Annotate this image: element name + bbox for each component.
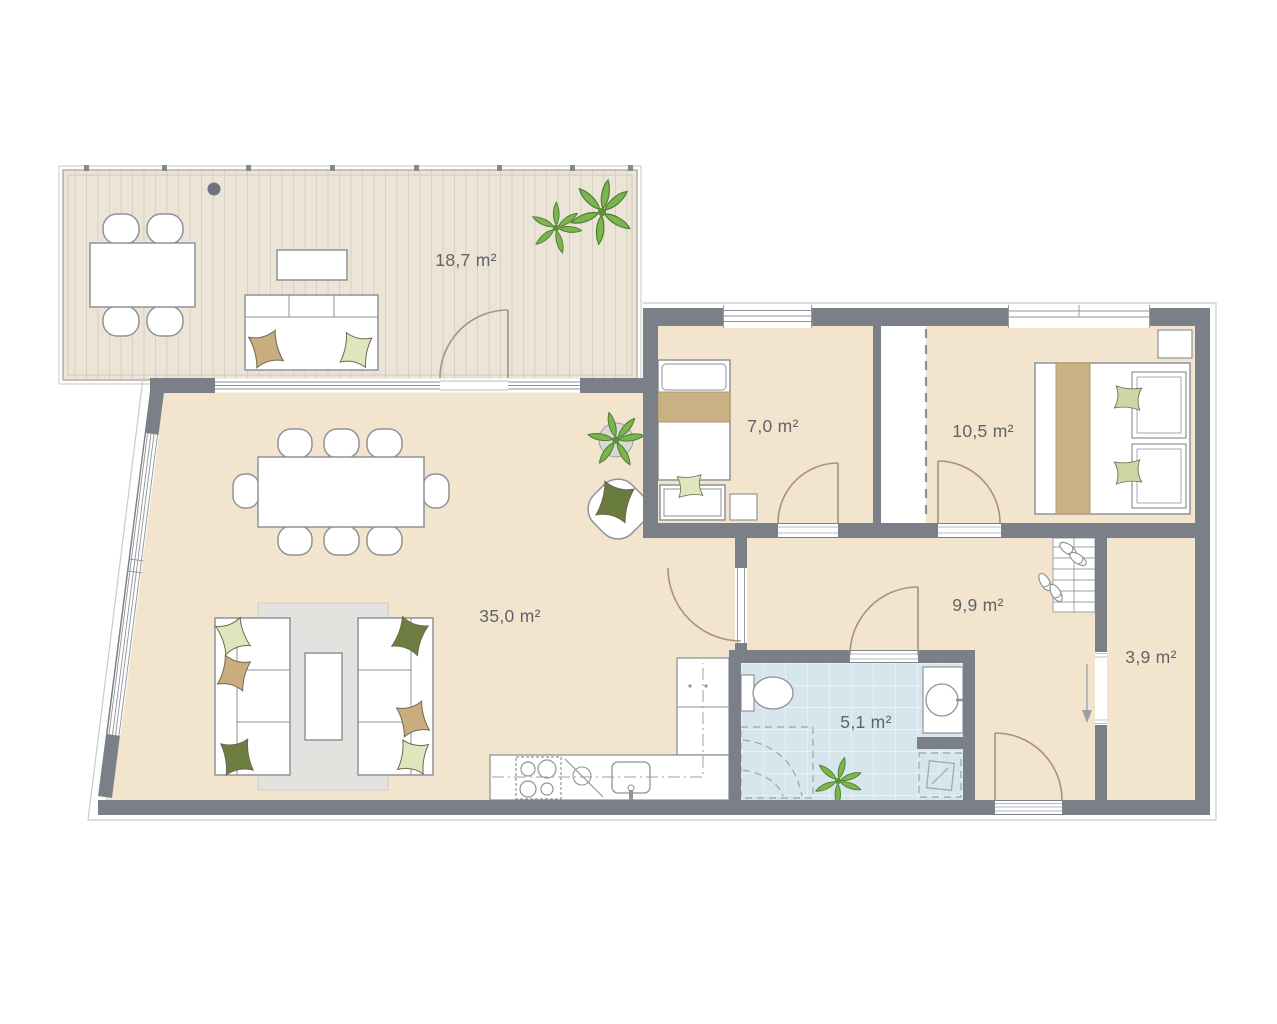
wall-stub xyxy=(917,737,963,749)
floor-plan: 18,7 m² xyxy=(0,0,1277,1024)
room-label-bedroom-2: 10,5 m² xyxy=(952,421,1013,441)
terrace-sofa xyxy=(245,295,378,370)
window-terrace-right xyxy=(508,379,580,393)
coffee-table xyxy=(305,653,342,740)
wardrobe-niche xyxy=(881,326,926,523)
dining-chair xyxy=(423,474,449,508)
terrace-chair xyxy=(103,306,139,336)
door-panel-living-hall xyxy=(735,568,747,643)
nightstand xyxy=(1158,330,1192,358)
window-bedroom-2 xyxy=(1008,305,1150,328)
wall xyxy=(1095,725,1107,800)
wall xyxy=(1095,538,1107,652)
dining-chair xyxy=(324,429,359,458)
dining-chair xyxy=(278,526,312,555)
room-label-living: 35,0 m² xyxy=(479,606,540,626)
terrace-chair xyxy=(103,214,139,244)
entrance-threshold xyxy=(995,801,1062,814)
door-threshold-bedroom-2 xyxy=(938,524,1001,537)
room-label-terrace: 18,7 m² xyxy=(435,250,496,270)
pillow xyxy=(662,364,726,390)
room-label-bedroom-1: 7,0 m² xyxy=(747,416,798,436)
dining-chair xyxy=(324,526,359,555)
cushion xyxy=(1114,386,1141,410)
opening-storage xyxy=(1095,652,1107,725)
wall xyxy=(580,378,650,393)
terrace-chair xyxy=(147,214,183,244)
window-bedroom-1 xyxy=(723,305,812,328)
floor-plan-page: 18,7 m² xyxy=(0,0,1277,1024)
terrace-coffee-table xyxy=(277,250,347,280)
ceiling-light-icon xyxy=(208,183,221,196)
window-terrace-left xyxy=(215,379,440,393)
wall-exterior-right xyxy=(1195,308,1210,815)
dining-chair xyxy=(278,429,312,458)
toilet-icon xyxy=(753,677,793,709)
terrace-table xyxy=(90,243,195,307)
lounge-area xyxy=(215,603,433,790)
dining-chair xyxy=(233,474,259,508)
washbasin-icon xyxy=(926,684,958,716)
pillow xyxy=(1132,444,1186,508)
toilet-tank xyxy=(741,675,754,711)
pillow xyxy=(1132,372,1186,438)
blanket xyxy=(658,392,730,422)
cushion xyxy=(677,475,703,498)
wall xyxy=(729,663,741,800)
door-threshold-bathroom xyxy=(850,651,918,662)
wall xyxy=(735,538,747,568)
wall xyxy=(643,326,658,538)
dining-chair xyxy=(367,526,402,555)
room-label-hallway: 9,9 m² xyxy=(952,595,1003,615)
room-label-storage: 3,9 m² xyxy=(1125,647,1176,667)
wall-bedrooms-bottom xyxy=(658,523,1195,538)
wall xyxy=(873,326,881,523)
cushion xyxy=(1114,460,1141,484)
nightstand xyxy=(730,494,757,520)
dining-table xyxy=(258,457,424,527)
room-label-bathroom: 5,1 m² xyxy=(840,712,891,732)
door-threshold-bedroom-1 xyxy=(778,524,838,537)
terrace-chair xyxy=(147,306,183,336)
blanket xyxy=(1056,363,1090,514)
door-threshold-terrace xyxy=(440,379,508,393)
terrace: 18,7 m² xyxy=(59,165,642,384)
wall xyxy=(963,650,975,800)
dining-chair xyxy=(367,429,402,458)
